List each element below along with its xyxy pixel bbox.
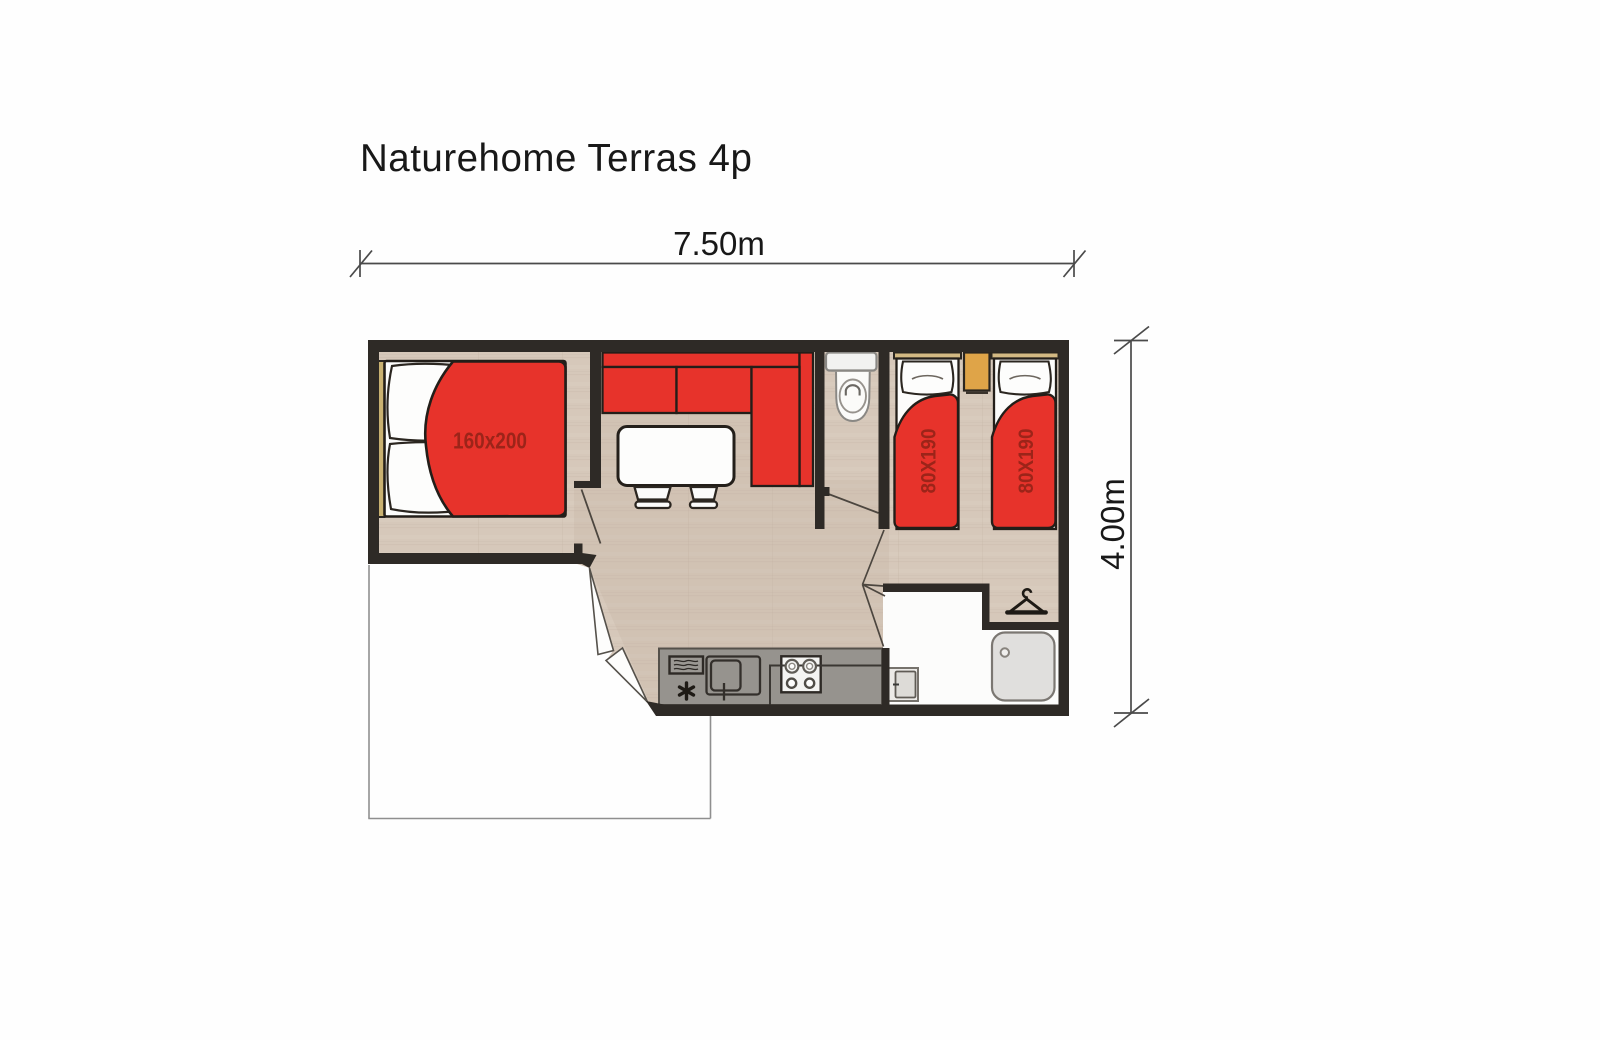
svg-text:160x200: 160x200 <box>453 428 527 454</box>
svg-text:4.00m: 4.00m <box>1094 478 1131 570</box>
svg-text:80X190: 80X190 <box>917 428 941 493</box>
svg-text:Naturehome Terras 4p: Naturehome Terras 4p <box>360 137 752 180</box>
svg-text:7.50m: 7.50m <box>673 225 765 262</box>
svg-text:80X190: 80X190 <box>1014 428 1038 493</box>
